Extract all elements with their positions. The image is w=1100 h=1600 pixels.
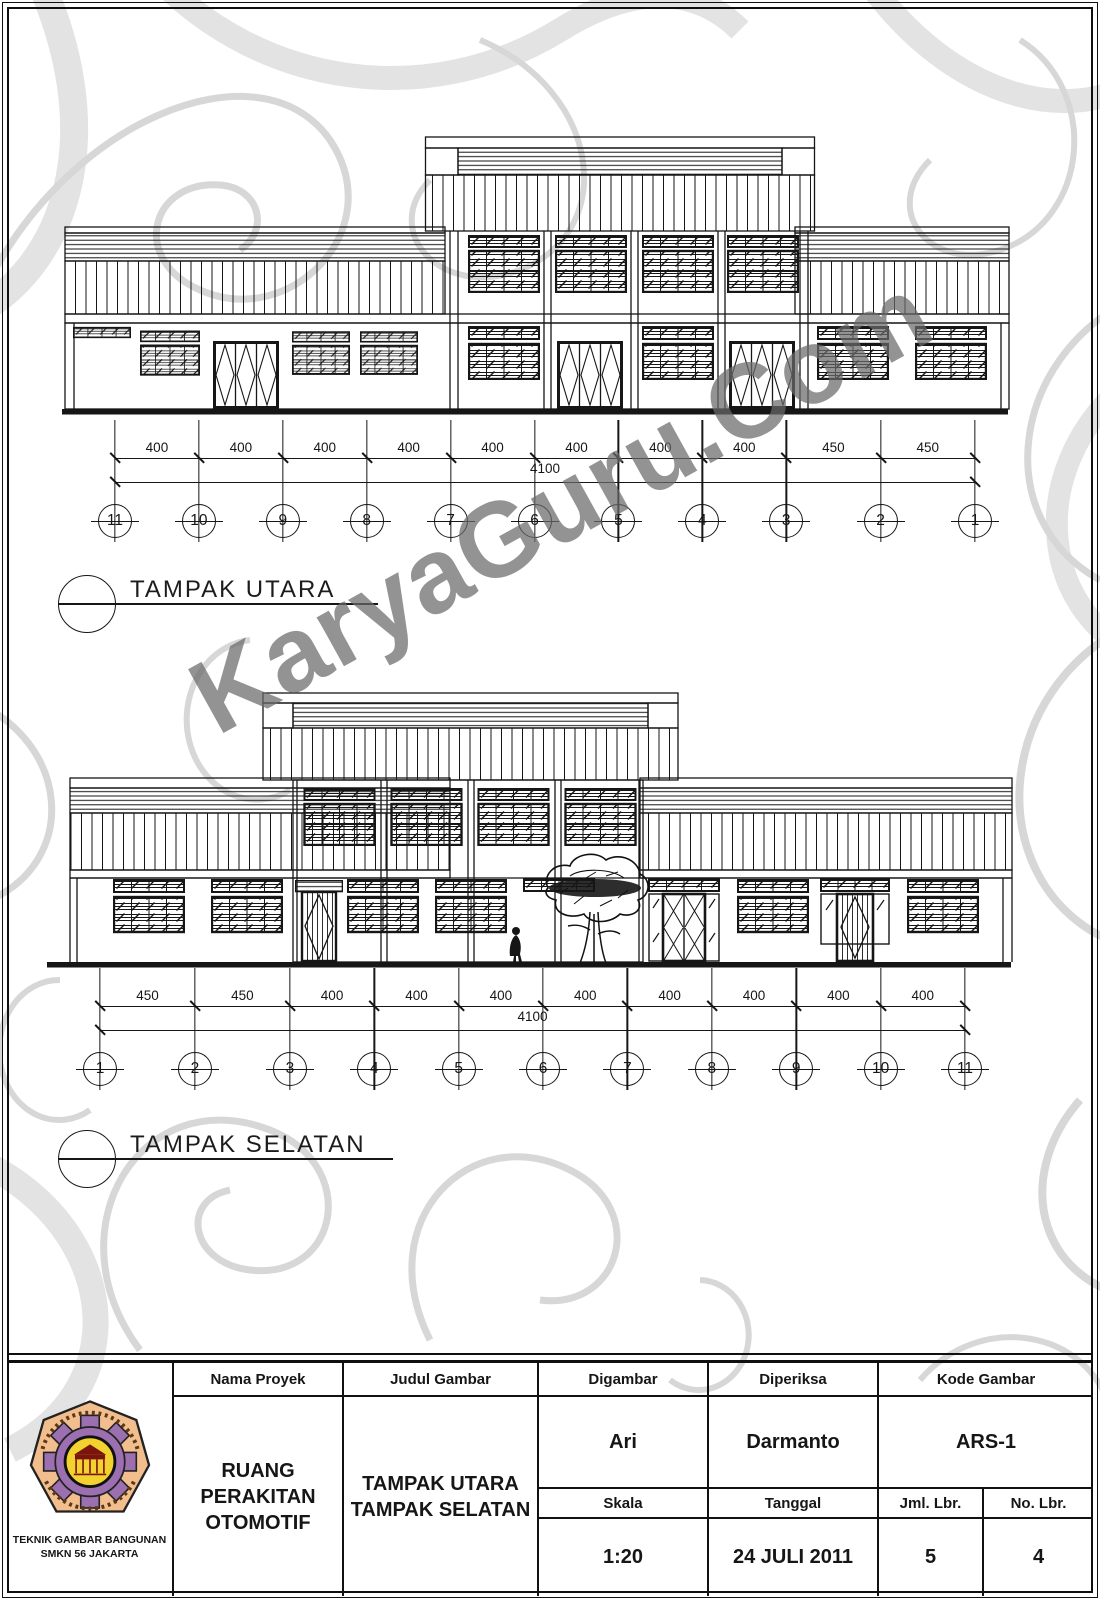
- grid-bubble: 5: [442, 1052, 476, 1086]
- dimension-label: 400: [743, 988, 766, 1003]
- grid-bubble: 11: [948, 1052, 982, 1086]
- ground-line: [62, 409, 1008, 415]
- project-name: RUANG PERAKITAN OTOMOTIF: [174, 1397, 344, 1596]
- header-digambar: Digambar: [539, 1363, 709, 1397]
- person-figure: [510, 927, 522, 962]
- drawing-sheet: 1110987654321400400400400400400400400450…: [0, 0, 1100, 1600]
- dimension-label: 400: [481, 440, 504, 455]
- south-view-title-text: TAMPAK SELATAN: [130, 1131, 366, 1159]
- grid-bubble: 6: [526, 1052, 560, 1086]
- clerestory-window: [643, 236, 713, 292]
- clerestory-window: [469, 236, 539, 292]
- dimension-label: 400: [230, 440, 253, 455]
- grid-bubble: 1: [83, 1052, 117, 1086]
- louvered-window: [908, 880, 978, 932]
- grid-bubble-tick: [350, 1069, 398, 1070]
- dimension-label: 450: [231, 988, 254, 1003]
- value-jml-lbr: 5: [879, 1519, 984, 1596]
- dimension-label: 400: [658, 988, 681, 1003]
- value-diperiksa: Darmanto: [709, 1397, 879, 1489]
- dimension-label: 400: [490, 988, 513, 1003]
- grid-bubble-tick: [519, 1069, 567, 1070]
- grid-bubble: 3: [273, 1052, 307, 1086]
- glass-double-door: [649, 879, 719, 961]
- dimension-label: 400: [313, 440, 336, 455]
- south-clerestory-roof: [263, 693, 678, 780]
- header-jml-lbr: Jml. Lbr.: [879, 1489, 984, 1519]
- grid-bubble: 2: [864, 504, 898, 538]
- grid-bubble-tick: [435, 1069, 483, 1070]
- header-nama-proyek: Nama Proyek: [174, 1363, 344, 1397]
- ground-line: [47, 962, 1011, 968]
- grid-bubble-tick: [951, 521, 999, 522]
- project-name-line: PERAKITAN: [200, 1484, 315, 1510]
- header-tanggal: Tanggal: [709, 1489, 879, 1519]
- grid-bubble-tick: [857, 1069, 905, 1070]
- grid-bubble-tick: [772, 1069, 820, 1070]
- dimension-label: 450: [917, 440, 940, 455]
- louvered-window: [469, 327, 539, 379]
- diamond-door: [296, 881, 343, 962]
- grid-bubble-tick: [91, 521, 139, 522]
- project-name-line: OTOMOTIF: [205, 1510, 310, 1536]
- grid-bubble-tick: [266, 1069, 314, 1070]
- value-tanggal: 24 JULI 2011: [709, 1519, 879, 1596]
- dimension-label: 400: [827, 988, 850, 1003]
- grid-bubble: 7: [610, 1052, 644, 1086]
- clerestory-window: [556, 236, 626, 292]
- value-digambar: Ari: [539, 1397, 709, 1489]
- school-caption-line: SMKN 56 JAKARTA: [13, 1548, 166, 1561]
- north-left-wing-roof: [65, 227, 445, 314]
- south-dimension-strip: 1234567891011450450400400400400400400400…: [100, 968, 965, 1093]
- project-name-line: RUANG: [221, 1458, 294, 1484]
- dimension-line: [100, 1006, 965, 1007]
- grid-bubble-tick: [688, 1069, 736, 1070]
- louvered-window: [114, 880, 184, 932]
- school-caption: TEKNIK GAMBAR BANGUNAN SMKN 56 JAKARTA: [13, 1534, 166, 1560]
- folding-door: [215, 343, 278, 408]
- header-skala: Skala: [539, 1489, 709, 1519]
- grid-bubble-tick: [762, 521, 810, 522]
- dimension-label: 450: [136, 988, 159, 1003]
- grid-bubble: 4: [685, 504, 719, 538]
- grid-bubble-tick: [171, 1069, 219, 1070]
- grid-bubble: 10: [864, 1052, 898, 1086]
- grid-bubble: 9: [266, 504, 300, 538]
- louvered-window: [348, 880, 418, 932]
- total-dimension-line: [100, 1030, 965, 1031]
- title-block: TEKNIK GAMBAR BANGUNAN SMKN 56 JAKARTA N…: [7, 1360, 1093, 1596]
- grid-bubble: 2: [178, 1052, 212, 1086]
- window-strip: [74, 328, 130, 338]
- dimension-label: 400: [574, 988, 597, 1003]
- grid-bubble-tick: [941, 1069, 989, 1070]
- value-no-lbr: 4: [984, 1519, 1093, 1596]
- clerestory-window: [479, 789, 549, 845]
- louvered-window: [212, 880, 282, 932]
- grid-bubble: 1: [958, 504, 992, 538]
- south-view-title: TAMPAK SELATAN: [58, 1130, 393, 1194]
- grid-bubble: 10: [182, 504, 216, 538]
- clerestory-window: [305, 789, 375, 845]
- value-kode-gambar: ARS-1: [879, 1397, 1093, 1489]
- grid-bubble: 8: [695, 1052, 729, 1086]
- grid-bubble-tick: [343, 521, 391, 522]
- grid-bubble-tick: [678, 521, 726, 522]
- drawing-title-line: TAMPAK UTARA: [362, 1471, 519, 1497]
- clerestory-window: [566, 789, 636, 845]
- header-kode-gambar: Kode Gambar: [879, 1363, 1093, 1397]
- drawing-title-line: TAMPAK SELATAN: [351, 1497, 531, 1523]
- grid-bubble: 8: [350, 504, 384, 538]
- header-diperiksa: Diperiksa: [709, 1363, 879, 1397]
- dimension-label: 400: [146, 440, 169, 455]
- grid-bubble-tick: [259, 521, 307, 522]
- diamond-door: [821, 879, 889, 961]
- louvered-window: [293, 332, 349, 374]
- dimension-label: 400: [321, 988, 344, 1003]
- total-dimension-label: 4100: [517, 1009, 547, 1024]
- drawing-title: TAMPAK UTARA TAMPAK SELATAN: [344, 1397, 539, 1596]
- south-right-wing-roof: [640, 778, 1012, 878]
- clerestory-window: [392, 789, 462, 845]
- grid-bubble-tick: [76, 1069, 124, 1070]
- grid-bubble-tick: [857, 521, 905, 522]
- dimension-label: 400: [405, 988, 428, 1003]
- north-clerestory-roof: [426, 137, 815, 231]
- clerestory-window: [728, 236, 798, 292]
- dimension-label: 450: [822, 440, 845, 455]
- grid-bubble-tick: [175, 521, 223, 522]
- value-skala: 1:20: [539, 1519, 709, 1596]
- school-logo: [26, 1398, 154, 1530]
- louvered-window: [436, 880, 506, 932]
- header-judul-gambar: Judul Gambar: [344, 1363, 539, 1397]
- dimension-label: 400: [912, 988, 935, 1003]
- louvered-window: [141, 331, 199, 374]
- louvered-window: [361, 332, 417, 374]
- grid-bubble: 3: [769, 504, 803, 538]
- grid-bubble-tick: [603, 1069, 651, 1070]
- grid-bubble: 11: [98, 504, 132, 538]
- school-logo-cell: TEKNIK GAMBAR BANGUNAN SMKN 56 JAKARTA: [7, 1363, 174, 1596]
- grid-bubble: 9: [779, 1052, 813, 1086]
- dimension-label: 400: [397, 440, 420, 455]
- south-elevation-drawing: [45, 675, 1015, 970]
- folding-door: [559, 343, 622, 408]
- drawing-area-divider: [7, 1353, 1093, 1355]
- louvered-window: [738, 880, 808, 932]
- school-caption-line: TEKNIK GAMBAR BANGUNAN: [13, 1534, 166, 1547]
- grid-bubble: 4: [357, 1052, 391, 1086]
- header-no-lbr: No. Lbr.: [984, 1489, 1093, 1519]
